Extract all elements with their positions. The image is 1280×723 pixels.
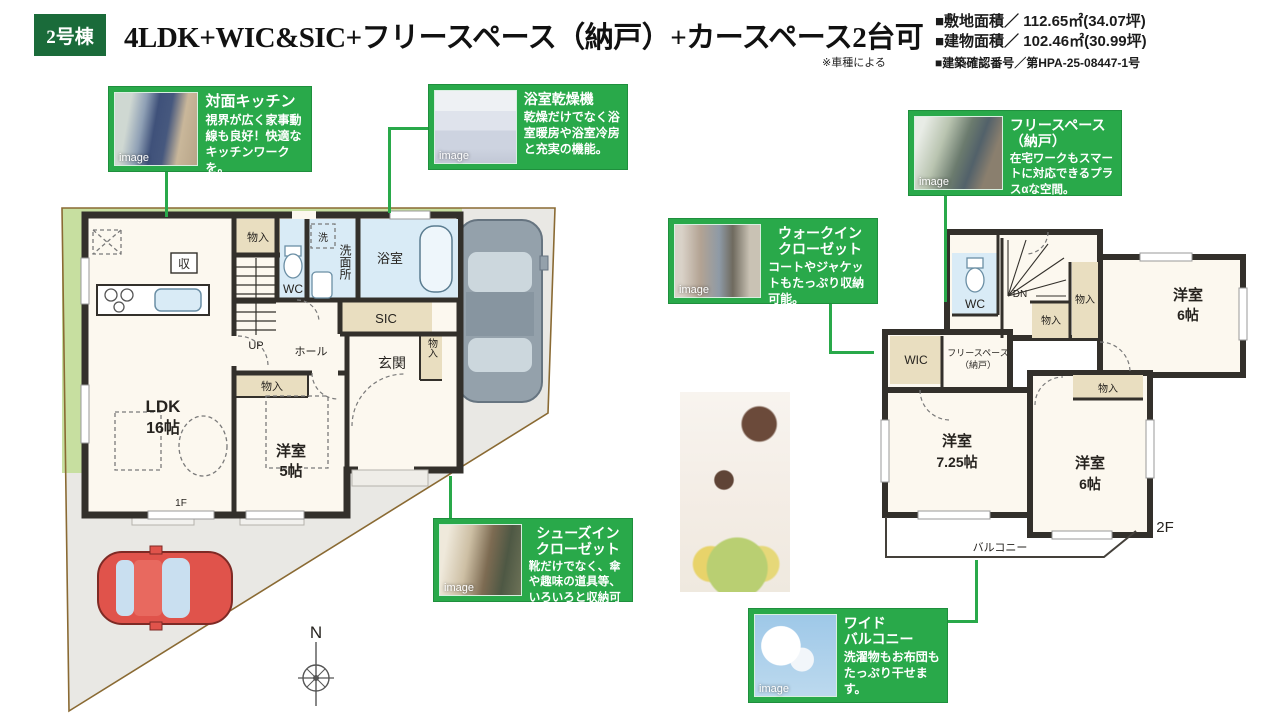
label-closet-entrance: 物入 — [426, 337, 438, 358]
callout-sic: image シューズイン クローゼット 靴だけでなく、傘や趣味の道具等、いろいろ… — [433, 518, 633, 602]
label-wc-2f: WC — [965, 297, 985, 311]
callout-freespace-text: フリースペース （納戸） 在宅ワークもスマートに対応できるプラスαな空間。 — [1003, 116, 1116, 190]
spec-confirmation-number: ■建築確認番号／第HPA-25-08447-1号 — [935, 55, 1147, 71]
connector-wic-h — [829, 351, 874, 354]
label-bedroom725: 洋室 — [942, 432, 972, 450]
callout-sic-body: 靴だけでなく、傘や趣味の道具等、いろいろと収納可能。 — [529, 560, 627, 621]
vanity-sink — [312, 272, 332, 298]
callout-bathdryer-text: 浴室乾燥機 乾燥だけでなく浴室暖房や浴室冷房と充実の機能。 — [517, 90, 622, 164]
label-bedroom6a-size: 6帖 — [1177, 307, 1199, 323]
image-watermark: image — [919, 176, 949, 188]
balcony-photo: image — [754, 614, 837, 697]
toilet-1f — [284, 246, 302, 278]
label-bedroom6a: 洋室 — [1173, 286, 1203, 304]
label-freespace-1: フリースペース — [947, 348, 1008, 358]
label-storage: 収 — [178, 257, 190, 271]
image-watermark: image — [759, 683, 789, 695]
label-bedroom5-size: 5帖 — [279, 462, 302, 480]
compass-n-label: N — [310, 623, 322, 642]
callout-sic-text: シューズイン クローゼット 靴だけでなく、傘や趣味の道具等、いろいろと収納可能。 — [522, 524, 627, 596]
image-watermark: image — [439, 150, 469, 162]
red-car — [98, 546, 232, 630]
spec-list: ■敷地面積／ 112.65㎡(34.07坪) ■建物面積／ 102.46㎡(30… — [935, 12, 1147, 71]
entrance-porch — [352, 470, 428, 486]
callout-wic-text: ウォークイン クローゼット コートやジャケットもたっぷり収納可能。 — [761, 224, 872, 298]
spec-site-area: ■敷地面積／ 112.65㎡(34.07坪) — [935, 12, 1147, 32]
callout-kitchen: image 対面キッチン 視界が広く家事動線も良好！快適なキッチンワークを。 — [108, 86, 312, 172]
connector-balcony-v — [975, 560, 978, 623]
floorplan-2f: WC DN 物入 物入 物入 WIC フリースペース （納戸） 洋室 6帖 洋室… — [880, 225, 1255, 580]
label-closet-2f-a: 物入 — [1041, 314, 1061, 327]
callout-wic-body: コートやジャケットもたっぷり収納可能。 — [768, 260, 872, 307]
callout-balcony-title: ワイド バルコニー — [844, 615, 942, 647]
family-photo — [680, 392, 790, 592]
label-closet-2f-c: 物入 — [1098, 382, 1118, 395]
bathdryer-photo: image — [434, 90, 517, 164]
connector-balcony-h — [946, 620, 978, 623]
freespace-photo: image — [914, 116, 1003, 190]
callout-balcony-body: 洗濯物もお布団もたっぷり干せます。 — [844, 650, 942, 697]
callout-kitchen-body: 視界が広く家事動線も良好！快適なキッチンワークを。 — [205, 113, 306, 176]
callout-sic-title: シューズイン クローゼット — [529, 525, 627, 557]
floorplan-1f: LDK 16帖 洋室 5帖 収 物入 WC 洗 洗面所 浴室 SIC ホール U… — [55, 200, 565, 723]
label-closet-bedroom5: 物入 — [261, 379, 283, 393]
gray-car — [452, 220, 548, 402]
bathtub — [420, 226, 452, 292]
page-title: 4LDK+WIC&SIC+フリースペース（納戸）+カースペース2台可 — [124, 14, 824, 56]
label-dn: DN — [1013, 289, 1027, 300]
label-floor-1f: 1F — [175, 498, 187, 509]
label-up: UP — [248, 340, 263, 352]
image-watermark: image — [679, 284, 709, 296]
callout-balcony-text: ワイド バルコニー 洗濯物もお布団もたっぷり干せます。 — [837, 614, 942, 697]
spec-building-area: ■建物面積／ 102.46㎡(30.99坪) — [935, 32, 1147, 52]
label-ldk-size: 16帖 — [146, 418, 180, 437]
callout-freespace-title: フリースペース （納戸） — [1010, 117, 1116, 149]
compass: N — [298, 623, 334, 706]
label-wic: WIC — [904, 353, 928, 367]
label-wc-1f: WC — [283, 282, 303, 296]
image-watermark: image — [444, 582, 474, 594]
label-bedroom6b-size: 6帖 — [1079, 476, 1101, 492]
label-balcony: バルコニー — [973, 541, 1028, 554]
connector-bathdryer-v — [388, 127, 391, 213]
label-entrance: 玄関 — [378, 355, 406, 371]
label-bedroom6b: 洋室 — [1075, 454, 1105, 472]
callout-kitchen-text: 対面キッチン 視界が広く家事動線も良好！快適なキッチンワークを。 — [198, 92, 306, 166]
toilet-2f — [966, 258, 984, 292]
callout-freespace-body: 在宅ワークもスマートに対応できるプラスαな空間。 — [1010, 152, 1116, 198]
label-closet-top: 物入 — [247, 230, 269, 244]
label-closet-2f-b: 物入 — [1075, 293, 1095, 306]
label-floor-2f: 2F — [1156, 519, 1174, 536]
connector-sic — [449, 476, 452, 520]
building-badge: 2号棟 — [34, 14, 106, 56]
label-bedroom725-size: 7.25帖 — [936, 454, 977, 470]
callout-freespace: image フリースペース （納戸） 在宅ワークもスマートに対応できるプラスαな… — [908, 110, 1122, 196]
callout-kitchen-title: 対面キッチン — [205, 93, 306, 110]
label-ldk: LDK — [146, 397, 182, 416]
callout-bathdryer: image 浴室乾燥機 乾燥だけでなく浴室暖房や浴室冷房と充実の機能。 — [428, 84, 628, 170]
connector-kitchen — [165, 172, 168, 217]
connector-wic-v — [829, 304, 832, 354]
image-watermark: image — [119, 152, 149, 164]
callout-bathdryer-title: 浴室乾燥機 — [524, 91, 622, 107]
label-hall: ホール — [295, 345, 328, 358]
label-bath: 浴室 — [377, 251, 403, 266]
connector-freespace — [944, 196, 947, 302]
sic-photo: image — [439, 524, 522, 596]
label-sic: SIC — [375, 311, 397, 326]
wic-photo: image — [674, 224, 761, 298]
callout-wic: image ウォークイン クローゼット コートやジャケットもたっぷり収納可能。 — [668, 218, 878, 304]
label-washer: 洗 — [318, 232, 328, 244]
callout-balcony: image ワイド バルコニー 洗濯物もお布団もたっぷり干せます。 — [748, 608, 948, 703]
connector-bathdryer-h — [388, 127, 430, 130]
label-washroom: 洗面所 — [338, 244, 352, 280]
label-freespace-2: （納戸） — [960, 359, 996, 370]
kitchen-counter — [97, 285, 209, 315]
flyer-page: 2号棟 4LDK+WIC&SIC+フリースペース（納戸）+カースペース2台可 ※… — [0, 0, 1280, 723]
title-note: ※車種による — [822, 54, 886, 70]
callout-wic-title: ウォークイン クローゼット — [768, 225, 872, 257]
label-bedroom5: 洋室 — [276, 442, 306, 460]
callout-bathdryer-body: 乾燥だけでなく浴室暖房や浴室冷房と充実の機能。 — [524, 110, 622, 157]
kitchen-photo: image — [114, 92, 198, 166]
